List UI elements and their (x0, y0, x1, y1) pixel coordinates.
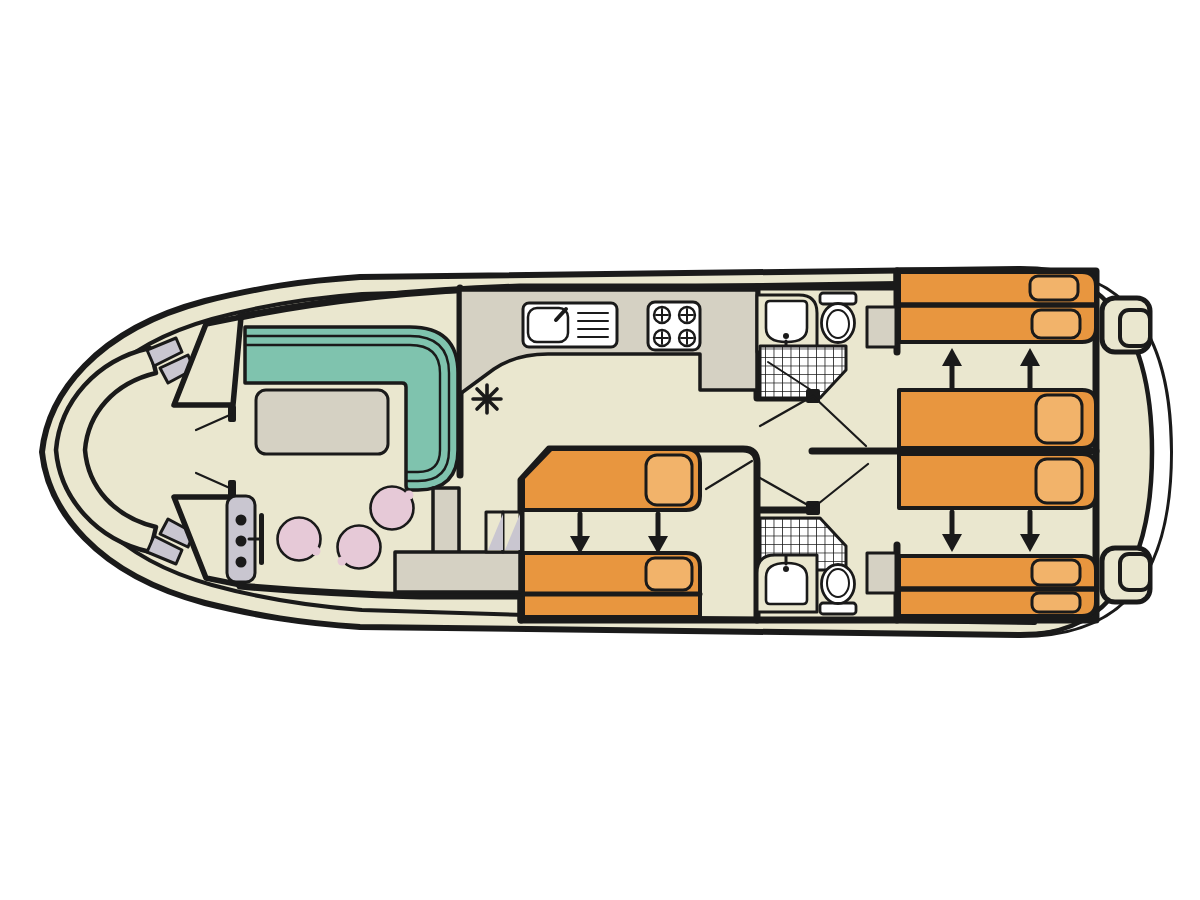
chair-notch (312, 547, 321, 556)
galley-lower-counter-upright (433, 488, 459, 554)
helm-instrument (236, 536, 247, 547)
chair-notch (338, 557, 347, 566)
stern-steps-top (1102, 298, 1150, 352)
helm-instrument (236, 557, 247, 568)
bed-pillow (1032, 593, 1080, 612)
boat-floorplan (0, 0, 1200, 900)
heater-asterisk-icon (473, 385, 501, 413)
helm-instrument (236, 515, 247, 526)
bed-pillow (1032, 310, 1080, 338)
basin-tap (783, 333, 789, 339)
bed-pillow (1036, 395, 1082, 443)
floorplan-stage (0, 0, 1200, 900)
swivel-chair (278, 518, 321, 561)
bed-pillow (1032, 560, 1080, 585)
toilet (820, 565, 856, 615)
toilet (820, 293, 856, 343)
saloon-table (256, 390, 388, 454)
bed-pillow (646, 455, 692, 505)
galley-lower-counter-base (395, 552, 520, 592)
swivel-chair (371, 487, 414, 530)
bed-pillow (1030, 276, 1078, 300)
chair-notch (405, 491, 414, 500)
bed-pillow (646, 558, 692, 590)
basin-tap (783, 566, 789, 572)
bed-pillow (1036, 459, 1082, 503)
galley-sink (523, 303, 617, 347)
stern-steps-bottom (1102, 548, 1150, 602)
wardrobe (867, 307, 896, 347)
companionway-steps (486, 512, 520, 552)
stern-step-inner (1120, 310, 1150, 346)
swivel-chair (338, 526, 381, 569)
stern-step-inner (1120, 554, 1150, 590)
asterisk-spokes (473, 385, 501, 413)
galley-hob (648, 302, 700, 350)
wardrobe (867, 553, 896, 593)
